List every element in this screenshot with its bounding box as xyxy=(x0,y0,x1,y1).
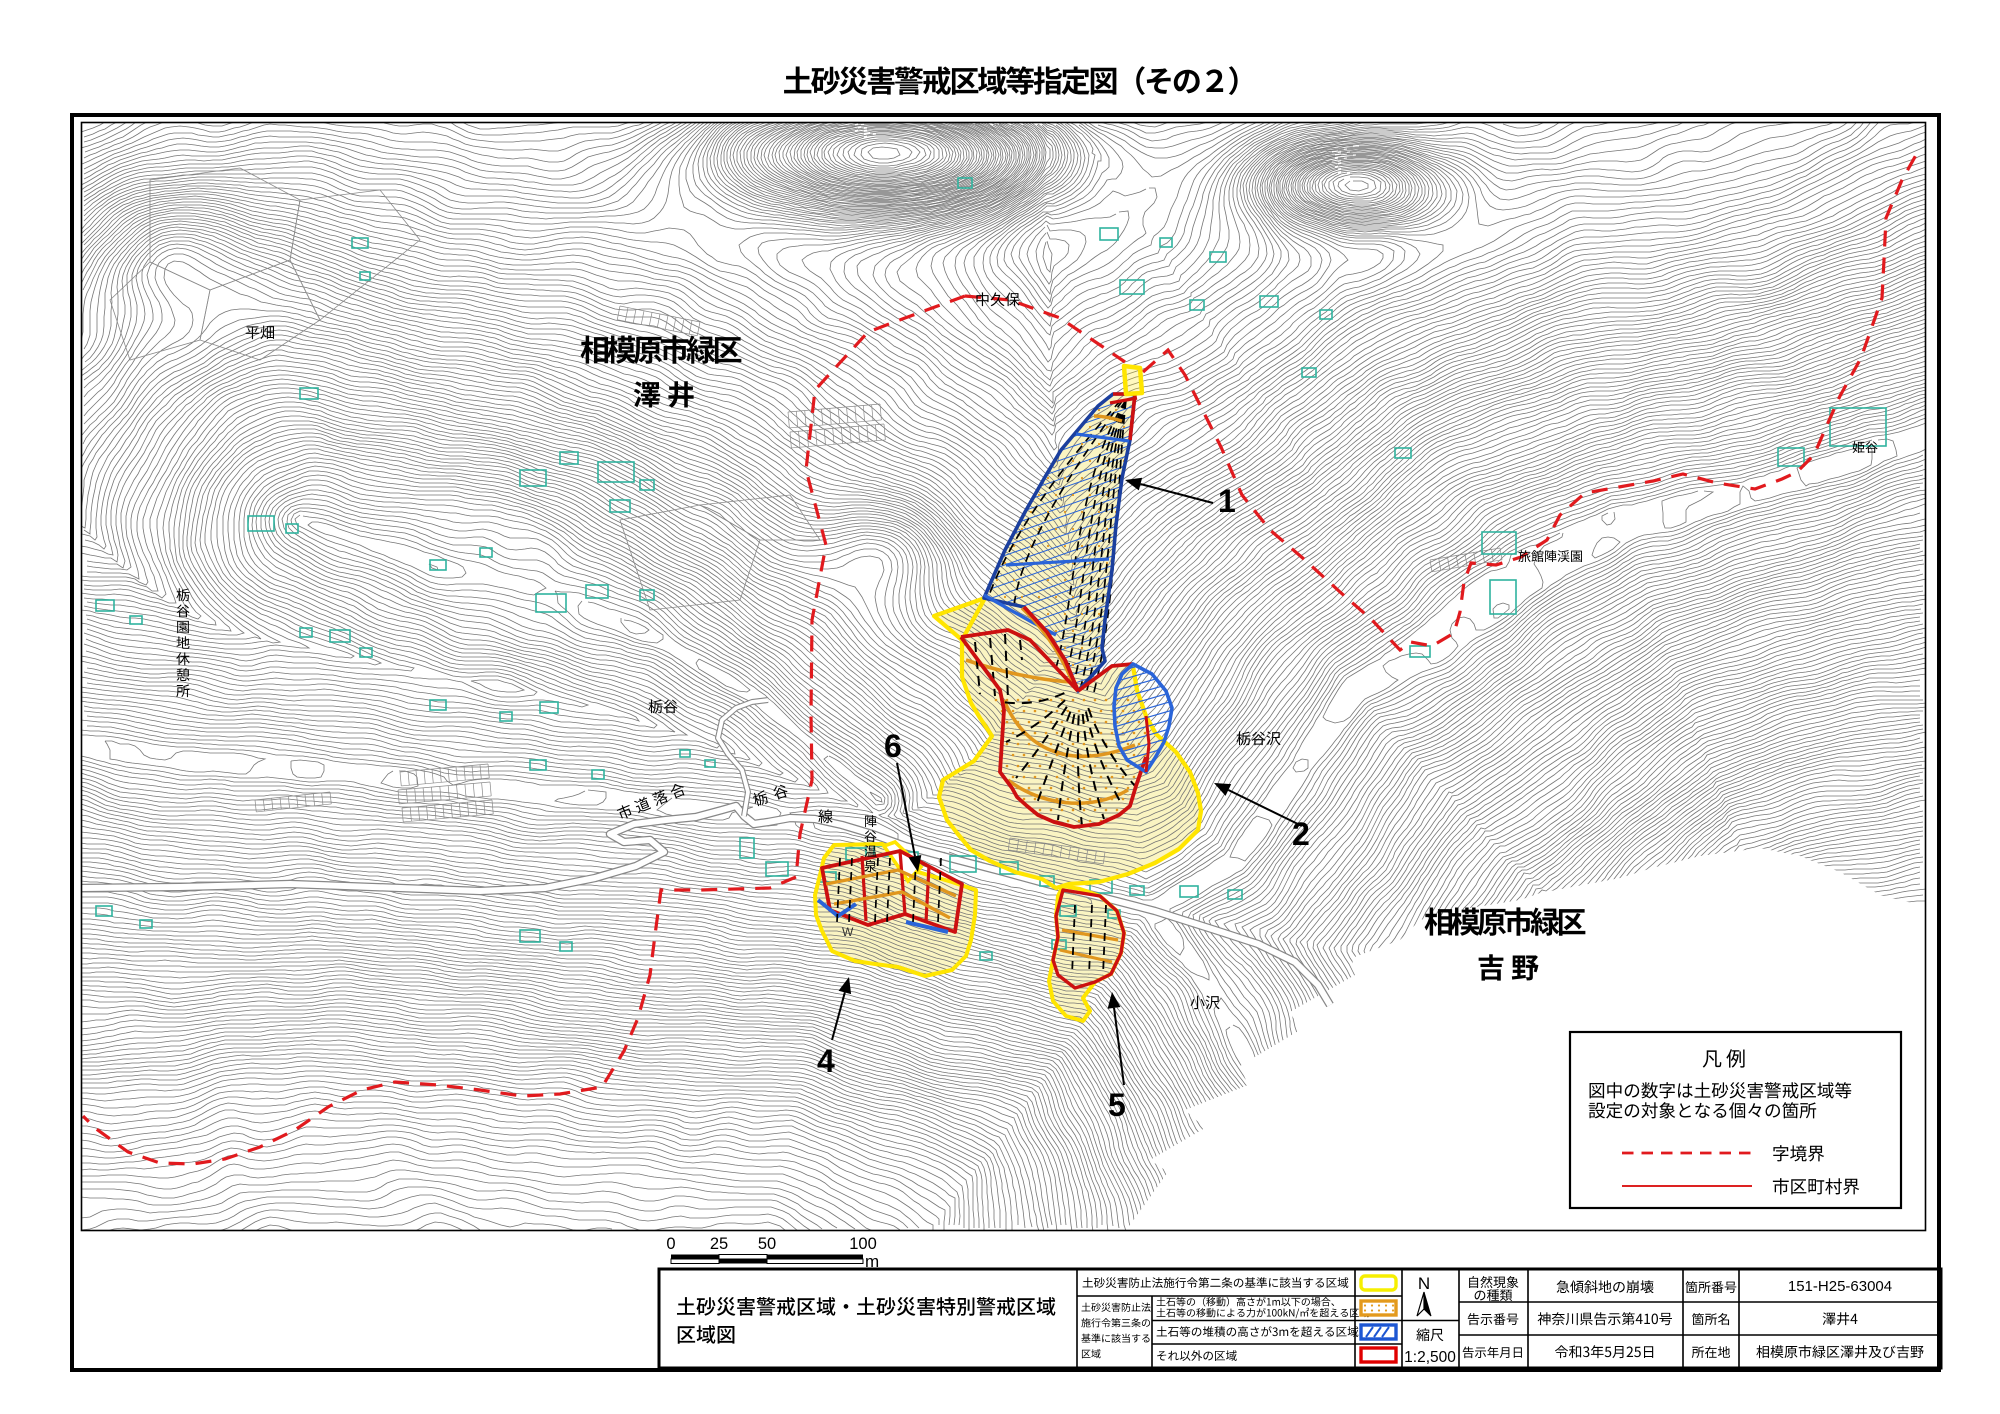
svg-text:100: 100 xyxy=(849,1235,877,1253)
svg-text:25: 25 xyxy=(710,1235,728,1253)
svg-text:0: 0 xyxy=(666,1235,675,1253)
svg-text:2: 2 xyxy=(1292,816,1310,852)
svg-text:1: 1 xyxy=(1218,483,1236,519)
svg-text:151-H25-63004: 151-H25-63004 xyxy=(1788,1278,1892,1295)
svg-text:6: 6 xyxy=(884,728,902,764)
svg-text:N: N xyxy=(1418,1274,1430,1293)
svg-text:W: W xyxy=(842,925,854,939)
svg-text:50: 50 xyxy=(758,1235,776,1253)
svg-text:5: 5 xyxy=(1108,1087,1126,1123)
svg-text:1:2,500: 1:2,500 xyxy=(1404,1349,1456,1366)
svg-text:4: 4 xyxy=(817,1043,835,1079)
